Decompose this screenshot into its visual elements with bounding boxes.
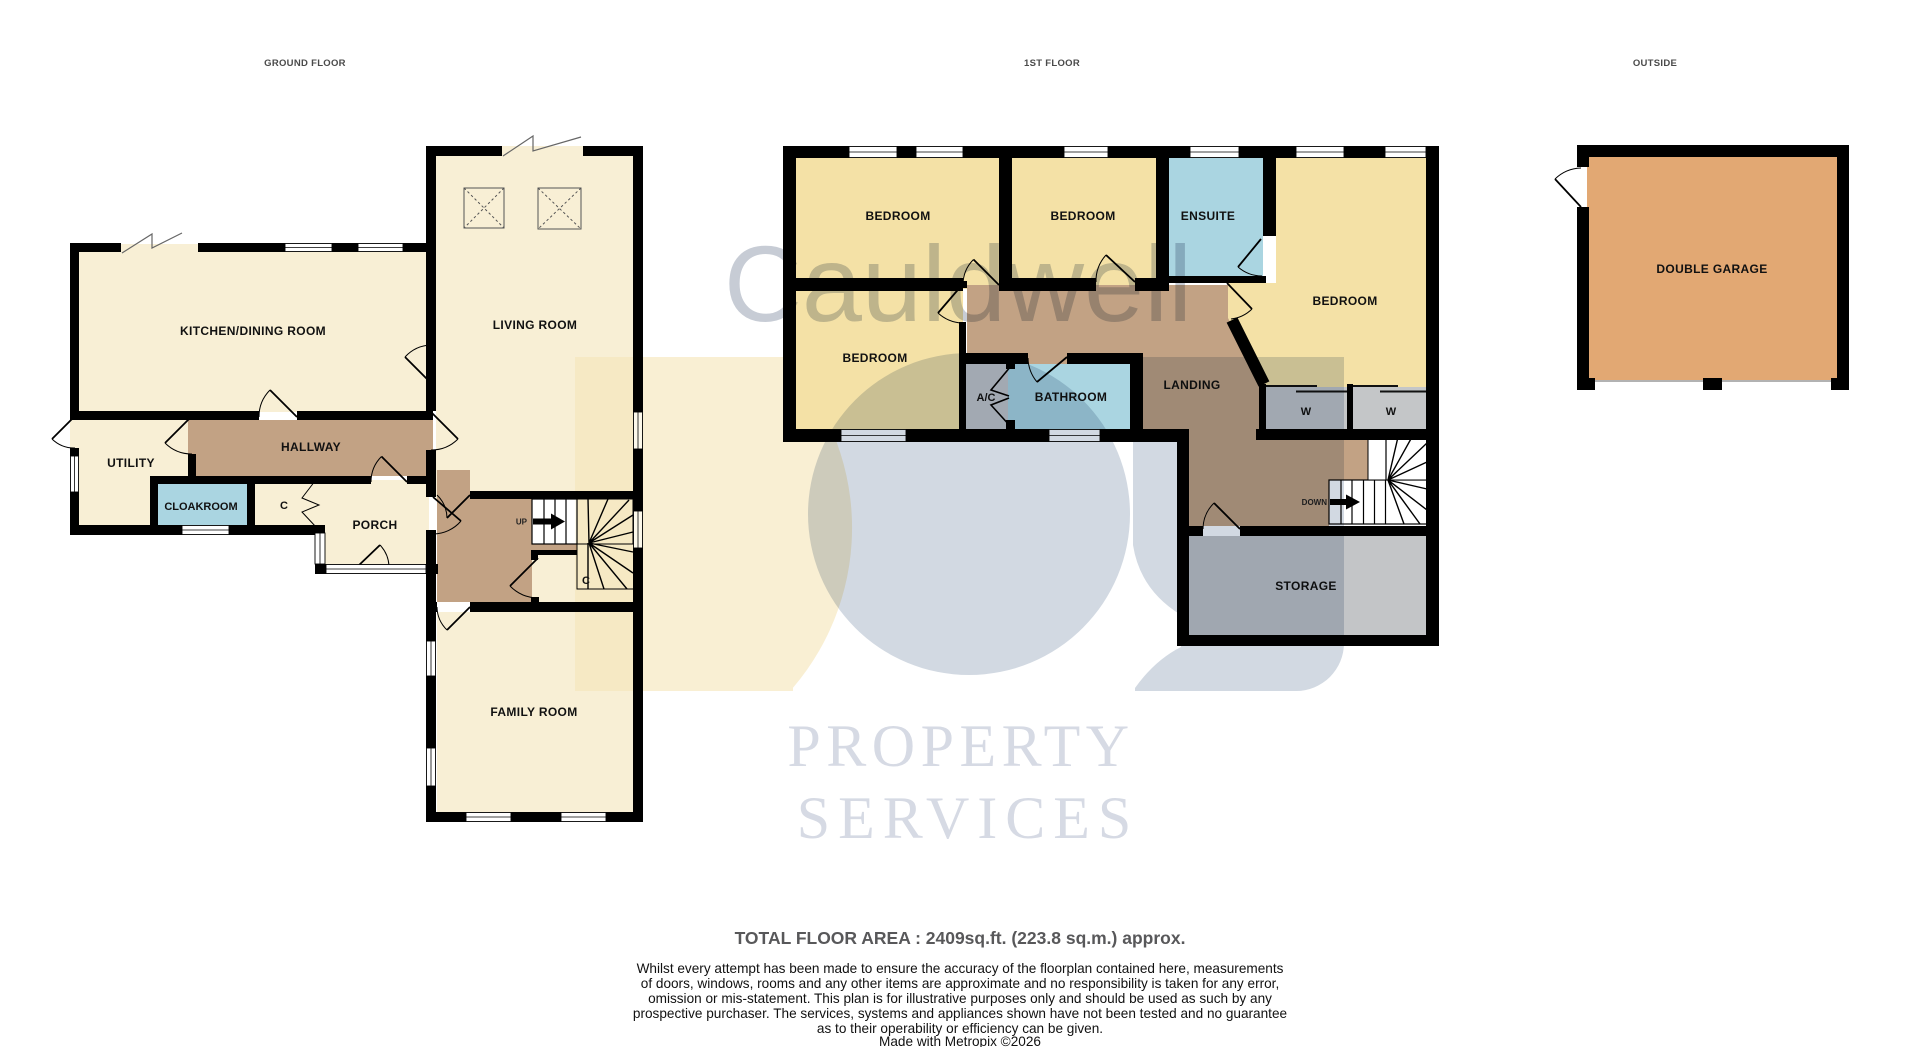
svg-text:BEDROOM: BEDROOM [1050, 209, 1115, 223]
svg-text:W: W [1386, 406, 1397, 418]
svg-text:ENSUITE: ENSUITE [1181, 209, 1235, 223]
svg-text:DOUBLE GARAGE: DOUBLE GARAGE [1656, 262, 1767, 276]
svg-text:TOTAL FLOOR AREA : 2409sq.ft.: TOTAL FLOOR AREA : 2409sq.ft. (223.8 sq.… [735, 928, 1186, 948]
svg-text:OUTSIDE: OUTSIDE [1633, 58, 1677, 69]
svg-text:PORCH: PORCH [352, 518, 397, 532]
svg-text:LIVING ROOM: LIVING ROOM [493, 318, 578, 332]
svg-text:SERVICES: SERVICES [797, 785, 1140, 851]
svg-text:CLOAKROOM: CLOAKROOM [164, 501, 237, 513]
svg-text:C: C [280, 500, 288, 512]
svg-text:HALLWAY: HALLWAY [281, 440, 341, 454]
svg-text:BEDROOM: BEDROOM [842, 351, 907, 365]
svg-text:FAMILY ROOM: FAMILY ROOM [490, 705, 577, 719]
svg-text:Whilst every attempt has been: Whilst every attempt has been made to en… [637, 961, 1284, 976]
svg-text:BEDROOM: BEDROOM [1312, 294, 1377, 308]
svg-text:Made with Metropix ©2026: Made with Metropix ©2026 [879, 1034, 1041, 1047]
svg-text:prospective purchaser. The ser: prospective purchaser. The services, sys… [633, 1006, 1287, 1021]
svg-text:KITCHEN/DINING ROOM: KITCHEN/DINING ROOM [180, 324, 326, 338]
svg-text:omission or mis-statement. Thi: omission or mis-statement. This plan is … [648, 991, 1272, 1006]
svg-text:1ST FLOOR: 1ST FLOOR [1024, 58, 1080, 69]
svg-text:BEDROOM: BEDROOM [865, 209, 930, 223]
svg-text:GROUND FLOOR: GROUND FLOOR [264, 58, 346, 69]
svg-text:of doors, windows, rooms and a: of doors, windows, rooms and any other i… [641, 976, 1279, 991]
svg-text:PROPERTY: PROPERTY [787, 713, 1134, 779]
svg-text:UTILITY: UTILITY [107, 456, 155, 470]
svg-text:Cauldwell: Cauldwell [724, 223, 1192, 344]
svg-text:UP: UP [516, 518, 528, 527]
